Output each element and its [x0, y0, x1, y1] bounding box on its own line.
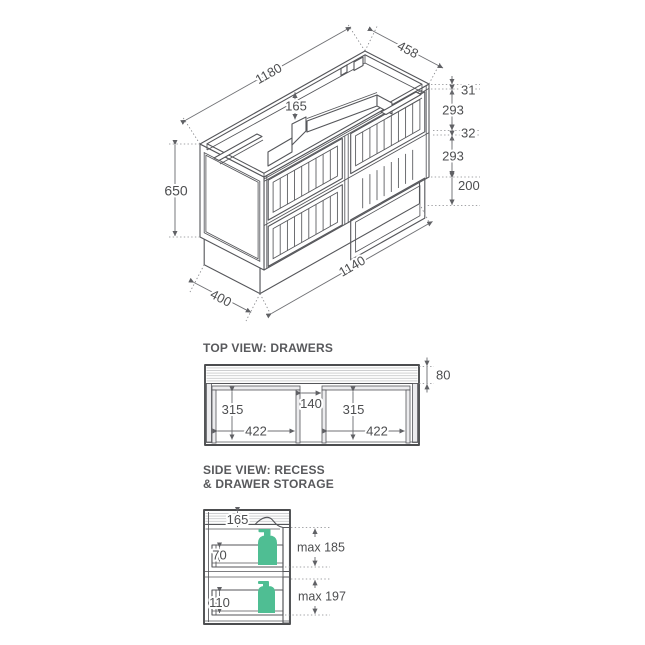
side-view-title-line2: & DRAWER STORAGE — [203, 477, 334, 491]
side-view-title-line1: SIDE VIEW: RECESS — [203, 463, 325, 477]
side-dim-bottom-clearance: max 197 — [298, 589, 346, 603]
side-dim-top-clearance: max 185 — [297, 540, 345, 554]
side-dim-top-drawer-inner: 70 — [212, 548, 226, 563]
top-view-title: TOP VIEW: DRAWERS — [203, 341, 333, 355]
side-dim-recess-depth: 165 — [227, 512, 249, 527]
side-view: SIDE VIEW: RECESS & DRAWER STORAGE — [203, 463, 346, 624]
iso-dim-cabinet-height: 650 — [164, 182, 188, 198]
iso-dim-recess-depth: 165 — [285, 99, 307, 114]
top-view: TOP VIEW: DRAWERS 80 315 315 — [203, 341, 450, 445]
top-dim-center-gap: 140 — [300, 396, 322, 411]
iso-dim-top-width: 1180 — [253, 60, 285, 87]
top-dim-back-recess: 80 — [436, 368, 450, 383]
top-dim-left-drawer-depth: 315 — [222, 402, 244, 417]
iso-dim-top-rail: 31 — [461, 83, 475, 98]
iso-dim-bottom-drawer: 293 — [442, 149, 464, 164]
iso-dim-kick-height: 200 — [458, 178, 480, 193]
iso-dim-mid-rail: 32 — [461, 125, 475, 140]
technical-drawing-page: 1180 458 165 31 293 32 293 200 650 — [0, 0, 645, 645]
drawing-canvas: 1180 458 165 31 293 32 293 200 650 — [0, 0, 645, 645]
iso-dim-kick-width: 1140 — [336, 253, 368, 280]
iso-dim-kick-depth: 400 — [208, 286, 234, 309]
iso-dim-top-drawer: 293 — [442, 103, 464, 118]
top-dim-left-drawer-width: 422 — [245, 424, 267, 439]
top-dim-right-drawer-depth: 315 — [343, 402, 365, 417]
top-dim-right-drawer-width: 422 — [366, 424, 388, 439]
side-dim-bottom-drawer-inner: 110 — [209, 595, 230, 610]
top-view-recess-hatch — [207, 367, 418, 384]
iso-view: 1180 458 165 31 293 32 293 200 650 — [164, 23, 480, 321]
iso-dim-top-depth: 458 — [395, 38, 421, 61]
